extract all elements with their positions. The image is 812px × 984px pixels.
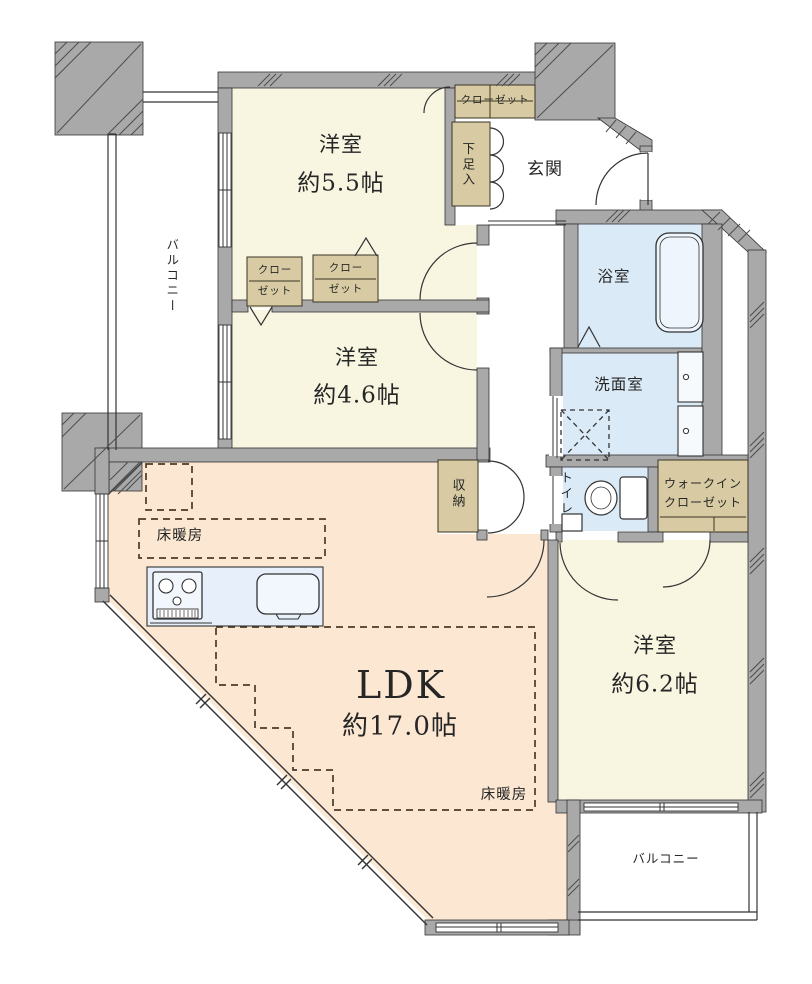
stove (153, 572, 202, 619)
wall-closet-row-b (272, 300, 489, 312)
bedroom-mid-floor (232, 310, 477, 450)
front-door-swing (596, 153, 648, 205)
bedroom-right-area: 約6.2帖 (611, 672, 699, 697)
floor-heating-kitchen-label: 床暖房 (157, 529, 204, 545)
wall-bed3-top-b (618, 532, 663, 542)
wall-corridor-c (477, 368, 489, 460)
storage-label: 収納 (451, 478, 464, 510)
floor-plan: 洋室 約5.5帖 洋室 約4.6帖 洋室 約6.2帖 LDK 約17.0帖 玄関… (0, 0, 812, 984)
toilet-label: トイレ (559, 471, 572, 517)
wall-band-under-bedroom (100, 448, 490, 462)
wall-balcony-left-band (567, 800, 580, 933)
wall-bed3-top-c (710, 532, 748, 542)
floor-heating-living-label: 床暖房 (481, 788, 528, 804)
bedroom-right-name: 洋室 (633, 634, 677, 657)
balcony-left-railing (108, 92, 218, 450)
storage-double-door-swing (488, 461, 524, 533)
shoe-cabinet-folding-doors (490, 128, 504, 209)
wall-bath-left (564, 224, 578, 348)
kitchen-counter (147, 567, 323, 626)
wall-left-window-jamb-top (95, 448, 109, 494)
vanity-upper (678, 352, 703, 402)
closet-b-line1: クロー (329, 263, 364, 275)
ldk-name: LDK (356, 665, 446, 707)
wic-line1: ウォークイン (664, 477, 742, 490)
bathroom-label: 浴室 (597, 268, 630, 285)
kitchen-sink (257, 574, 319, 619)
wall-ldk-bed3 (548, 540, 558, 802)
bedroom-mid-area: 約4.6帖 (313, 383, 401, 408)
bedroom-top-area: 約5.5帖 (297, 171, 385, 196)
wall-genkan-wedge (598, 118, 652, 150)
entrance-label: 玄関 (527, 161, 563, 180)
balcony-bottom-label: バルコニー (632, 852, 699, 866)
bathtub (656, 233, 703, 332)
wall-right-outer (748, 250, 766, 812)
wall-toilet-right (648, 467, 658, 532)
closet-a-line2: ゼット (258, 286, 293, 298)
floor-plan-drawing (0, 0, 812, 984)
balcony-left-label: バルコニー (165, 238, 178, 314)
wall-corridor-bottom-jamb-b (541, 530, 548, 540)
closet-a-line1: クロー (258, 265, 293, 277)
bedroom-top-name: 洋室 (319, 133, 363, 156)
closet-b-line2: ゼット (329, 284, 364, 296)
closet-entry-label: クローゼット (461, 95, 530, 107)
wall-bath-top (556, 210, 722, 224)
vanity-lower (678, 406, 703, 456)
wic-line2: クローゼット (664, 496, 742, 509)
front-door-opening (641, 152, 652, 200)
wall-genkan-jamb-top (640, 146, 652, 152)
wall-left-window-jamb-bottom (95, 588, 109, 602)
wall-bath-right (702, 224, 722, 456)
wall-corridor-a (477, 225, 489, 245)
shoe-cabinet-label: 下足入 (461, 142, 474, 188)
ldk-area: 約17.0帖 (342, 713, 458, 742)
wall-closet-row-a (232, 300, 248, 312)
bedroom-mid-name: 洋室 (335, 346, 379, 369)
washroom-label: 洗面室 (594, 376, 644, 393)
